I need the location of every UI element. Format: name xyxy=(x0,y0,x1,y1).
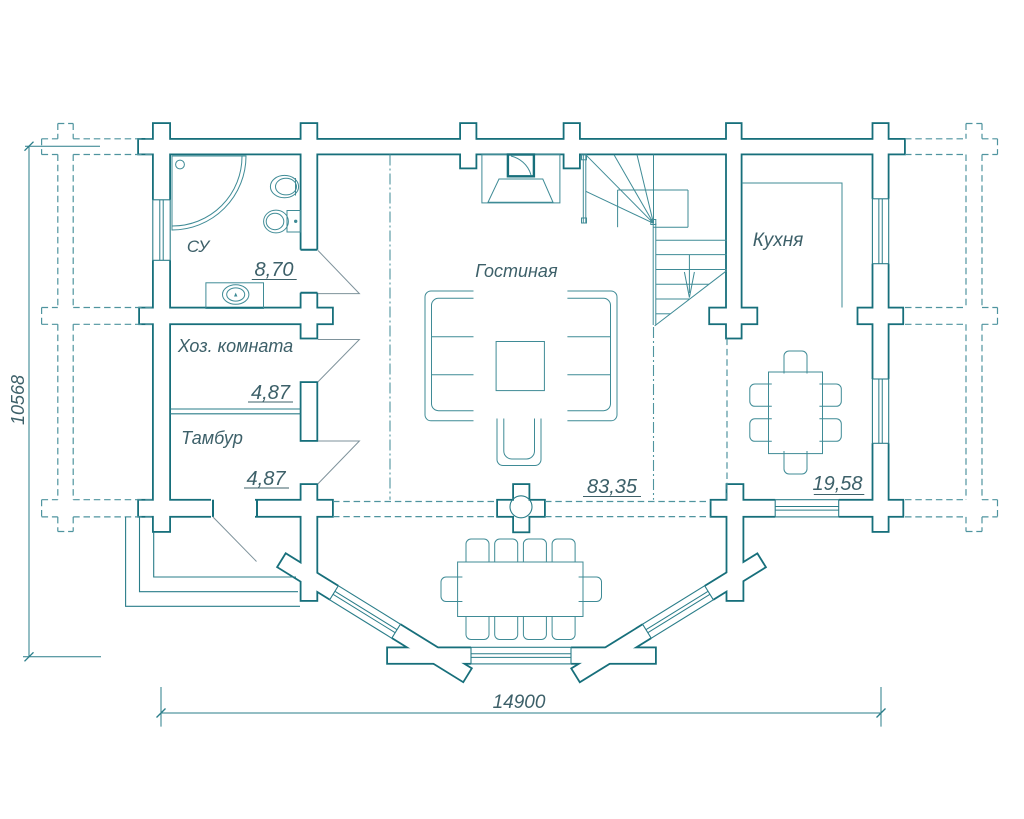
svg-text:8,70: 8,70 xyxy=(255,259,294,281)
svg-text:10568: 10568 xyxy=(8,375,28,425)
svg-text:14900: 14900 xyxy=(493,692,546,713)
svg-text:4,87: 4,87 xyxy=(251,382,291,404)
svg-text:Тамбур: Тамбур xyxy=(181,428,243,448)
svg-text:83,35: 83,35 xyxy=(587,476,638,498)
svg-text:19,58: 19,58 xyxy=(812,473,862,495)
svg-text:СУ: СУ xyxy=(187,237,211,256)
svg-text:Хоз. комната: Хоз. комната xyxy=(177,336,293,356)
svg-text:Кухня: Кухня xyxy=(753,230,804,251)
svg-text:Гостиная: Гостиная xyxy=(475,261,558,281)
svg-text:4,87: 4,87 xyxy=(247,468,287,490)
